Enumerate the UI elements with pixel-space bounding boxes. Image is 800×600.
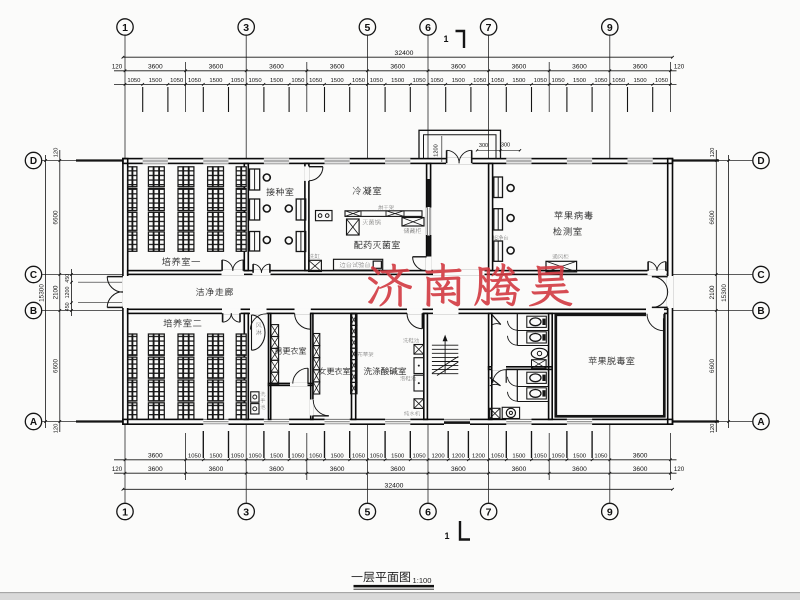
svg-text:1050: 1050 — [534, 454, 548, 460]
svg-text:5: 5 — [364, 22, 370, 34]
svg-text:3600: 3600 — [390, 63, 405, 70]
svg-text:A: A — [757, 417, 764, 428]
svg-text:1050: 1050 — [413, 454, 427, 460]
svg-text:120: 120 — [53, 147, 59, 158]
svg-text:1: 1 — [122, 506, 128, 518]
svg-text:1200: 1200 — [432, 454, 446, 460]
svg-text:1050: 1050 — [170, 78, 184, 84]
svg-text:1050: 1050 — [249, 454, 263, 460]
svg-text:1050: 1050 — [594, 78, 608, 84]
svg-text:2100: 2100 — [709, 285, 716, 299]
svg-text:450: 450 — [65, 302, 71, 311]
svg-text:1050: 1050 — [491, 78, 505, 84]
svg-text:1050: 1050 — [127, 78, 141, 84]
svg-text:32400: 32400 — [385, 482, 404, 489]
svg-text:C: C — [30, 270, 37, 281]
svg-text:1050: 1050 — [291, 78, 305, 84]
svg-text:1050: 1050 — [594, 454, 608, 460]
svg-text:3600: 3600 — [633, 453, 648, 460]
svg-text:1050: 1050 — [413, 78, 427, 84]
svg-text:3600: 3600 — [572, 63, 587, 70]
svg-text:3600: 3600 — [572, 466, 587, 473]
svg-text:1500: 1500 — [452, 78, 466, 84]
svg-text:1200: 1200 — [65, 287, 71, 299]
svg-text:3600: 3600 — [148, 63, 163, 70]
svg-text:120: 120 — [112, 466, 123, 473]
svg-text:9: 9 — [607, 506, 613, 518]
svg-text:1: 1 — [444, 531, 449, 541]
svg-text:15300: 15300 — [721, 284, 728, 302]
svg-text:1500: 1500 — [512, 78, 526, 84]
svg-text:1500: 1500 — [391, 454, 405, 460]
svg-text:1500: 1500 — [331, 78, 345, 84]
svg-text:1500: 1500 — [512, 454, 526, 460]
svg-text:300: 300 — [501, 143, 510, 149]
svg-text:1500: 1500 — [209, 78, 223, 84]
svg-text:7: 7 — [486, 22, 492, 34]
svg-text:A: A — [30, 417, 37, 428]
svg-text:6600: 6600 — [52, 210, 59, 225]
svg-text:1050: 1050 — [352, 78, 366, 84]
svg-text:3600: 3600 — [633, 466, 648, 473]
svg-text:7: 7 — [486, 506, 492, 518]
svg-text:1050: 1050 — [352, 454, 366, 460]
svg-text:1200: 1200 — [472, 454, 486, 460]
svg-text:300: 300 — [479, 143, 488, 149]
svg-text:1050: 1050 — [491, 454, 505, 460]
svg-text:1500: 1500 — [634, 78, 648, 84]
svg-text:D: D — [30, 156, 37, 167]
svg-text:9: 9 — [607, 22, 613, 34]
svg-text:1: 1 — [443, 34, 448, 44]
svg-text:1050: 1050 — [370, 454, 384, 460]
svg-text:120: 120 — [710, 147, 716, 158]
svg-text:6600: 6600 — [709, 358, 716, 373]
svg-text:3600: 3600 — [512, 466, 527, 473]
svg-text:3600: 3600 — [209, 466, 224, 473]
svg-text:6600: 6600 — [52, 358, 59, 373]
svg-text:D: D — [757, 156, 764, 167]
svg-text:1500: 1500 — [573, 78, 587, 84]
svg-text:1050: 1050 — [534, 78, 548, 84]
svg-text:1050: 1050 — [309, 454, 323, 460]
svg-text:3600: 3600 — [512, 63, 527, 70]
svg-text:3600: 3600 — [451, 63, 466, 70]
svg-text:3600: 3600 — [451, 466, 466, 473]
svg-text:1500: 1500 — [149, 78, 163, 84]
svg-text:C: C — [757, 270, 764, 281]
svg-text:3: 3 — [243, 22, 249, 34]
svg-text:120: 120 — [674, 466, 685, 473]
svg-text:1050: 1050 — [231, 78, 245, 84]
svg-text:1500: 1500 — [391, 78, 405, 84]
svg-text:32400: 32400 — [395, 50, 414, 57]
svg-text:3600: 3600 — [330, 63, 345, 70]
svg-text:1500: 1500 — [270, 78, 284, 84]
svg-text:3: 3 — [243, 506, 249, 518]
svg-text:3600: 3600 — [330, 466, 345, 473]
svg-text:3600: 3600 — [269, 466, 284, 473]
svg-text:3600: 3600 — [209, 63, 224, 70]
svg-text:1050: 1050 — [655, 78, 669, 84]
svg-text:1050: 1050 — [552, 78, 566, 84]
svg-text:1200: 1200 — [452, 454, 466, 460]
svg-text:1500: 1500 — [331, 454, 345, 460]
svg-text:1050: 1050 — [249, 78, 263, 84]
svg-text:3600: 3600 — [148, 466, 163, 473]
svg-text:120: 120 — [112, 63, 123, 70]
svg-text:6: 6 — [425, 22, 431, 34]
svg-text:2100: 2100 — [52, 285, 59, 299]
svg-text:1050: 1050 — [188, 78, 202, 84]
svg-text:3600: 3600 — [390, 466, 405, 473]
svg-text:1050: 1050 — [188, 454, 202, 460]
svg-text:1050: 1050 — [552, 454, 566, 460]
svg-text:1:100: 1:100 — [412, 576, 431, 585]
svg-text:1: 1 — [122, 22, 128, 34]
svg-text:1050: 1050 — [430, 78, 444, 84]
svg-text:B: B — [757, 306, 764, 317]
svg-text:6: 6 — [425, 506, 431, 518]
svg-text:1050: 1050 — [612, 78, 626, 84]
svg-text:120: 120 — [674, 63, 685, 70]
svg-text:15300: 15300 — [38, 284, 45, 302]
svg-text:B: B — [30, 306, 37, 317]
svg-text:3600: 3600 — [269, 63, 284, 70]
svg-text:6600: 6600 — [709, 210, 716, 225]
svg-text:120: 120 — [53, 423, 59, 434]
svg-text:120: 120 — [710, 423, 716, 434]
svg-text:1500: 1500 — [573, 454, 587, 460]
svg-text:1500: 1500 — [209, 454, 223, 460]
svg-text:1050: 1050 — [291, 454, 305, 460]
svg-text:1500: 1500 — [270, 454, 284, 460]
svg-text:1050: 1050 — [231, 454, 245, 460]
svg-text:1050: 1050 — [473, 78, 487, 84]
svg-text:3600: 3600 — [633, 63, 648, 70]
svg-text:450: 450 — [65, 274, 71, 283]
svg-text:1200: 1200 — [433, 144, 439, 156]
svg-text:1050: 1050 — [370, 78, 384, 84]
svg-text:3600: 3600 — [148, 453, 163, 460]
svg-text:5: 5 — [364, 506, 370, 518]
svg-text:1050: 1050 — [309, 78, 323, 84]
